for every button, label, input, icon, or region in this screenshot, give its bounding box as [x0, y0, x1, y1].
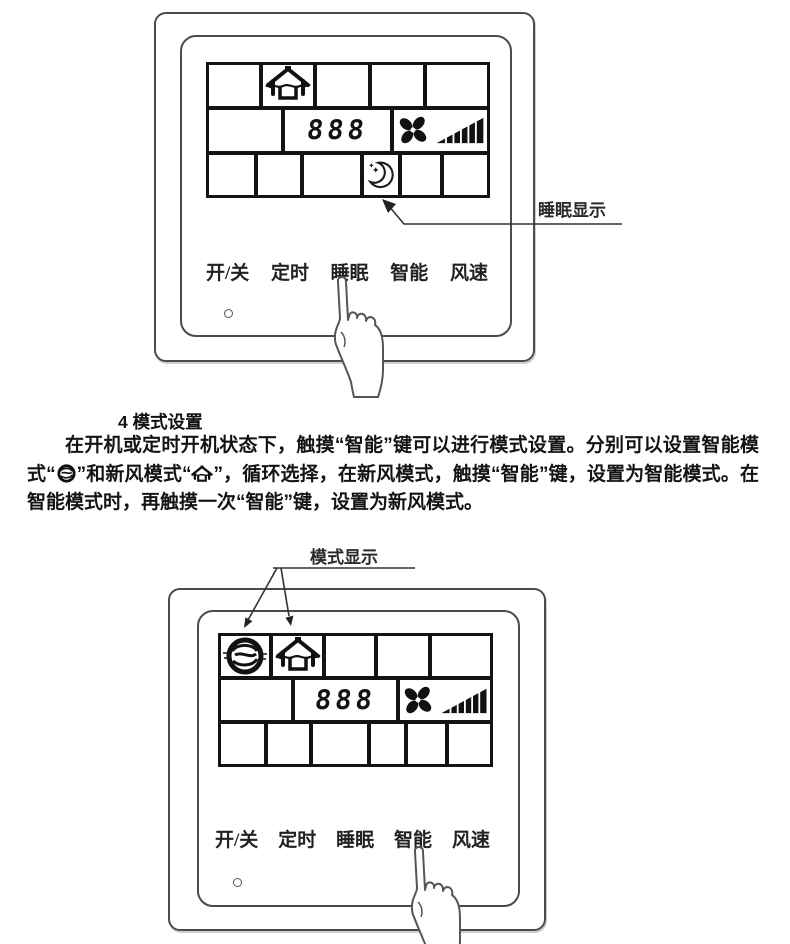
lcd-cell-empty: [258, 155, 305, 195]
lcd-digits: 888: [313, 687, 377, 714]
fresh-air-house-icon: [265, 65, 311, 105]
lcd-cell-empty: [372, 65, 428, 106]
lcd-digits: 888: [306, 117, 370, 144]
lcd-cell-empty: [402, 155, 444, 195]
lcd-cell-fan-speed: [394, 110, 487, 151]
manual-page: 888: [0, 0, 790, 944]
lcd-cell-empty: [326, 636, 378, 676]
lcd-cell-empty: [371, 724, 408, 764]
pointing-hand-icon: [409, 846, 465, 944]
lcd-cell-fan-speed: [400, 680, 490, 720]
power-led: [233, 878, 242, 887]
section-heading: 4 模式设置: [118, 409, 203, 434]
lcd-cell-sleep: [364, 155, 402, 195]
lcd-cell-digits: 888: [295, 680, 400, 720]
lcd-cell-empty: [304, 155, 363, 195]
paragraph-quote-open: “: [46, 464, 56, 485]
lcd-cell-empty: [313, 724, 371, 764]
key-sleep[interactable]: 睡眠: [336, 825, 374, 852]
lcd-cell-empty: [378, 636, 432, 676]
sleep-callout-leader: [380, 198, 626, 228]
sleep-moon-icon: [367, 159, 395, 191]
lcd-cell-empty: [317, 65, 371, 106]
key-timer[interactable]: 定时: [271, 258, 309, 285]
lcd-cell-fresh-air: [263, 65, 317, 106]
lcd-cell-empty: [427, 65, 487, 106]
key-timer[interactable]: 定时: [278, 825, 316, 852]
lcd-cell-empty: [221, 680, 295, 720]
lcd-cell-smart-mode: [221, 636, 273, 676]
lcd-cell-empty: [408, 724, 449, 764]
lcd-cell-digits: 888: [285, 110, 393, 151]
lcd-display: 888: [218, 633, 493, 767]
mode-callout-leader: [240, 560, 420, 634]
fan-icon: [400, 682, 436, 718]
lcd-cell-empty: [449, 724, 490, 764]
pointing-hand-icon: [332, 276, 388, 398]
key-fanspeed[interactable]: 风速: [450, 258, 488, 285]
paragraph-run-2: ”和新风模式“: [77, 464, 192, 485]
fan-icon: [395, 112, 431, 148]
section-paragraph: 在开机或定时开机状态下，触摸“智能”键可以进行模式设置。分别可以设置智能模式“ …: [27, 432, 759, 518]
lcd-cell-empty: [209, 110, 285, 151]
key-smart[interactable]: 智能: [390, 258, 428, 285]
lcd-cell-empty: [444, 155, 487, 195]
fan-speed-bars-icon: [434, 116, 486, 144]
lcd-cell-empty: [268, 724, 313, 764]
lcd-cell-empty: [209, 65, 263, 106]
smart-mode-inline-icon: [56, 463, 77, 484]
fresh-air-house-icon: [275, 636, 321, 676]
key-power[interactable]: 开/关: [206, 258, 249, 285]
lcd-display: 888: [206, 62, 490, 198]
lcd-cell-fresh-air: [273, 636, 325, 676]
power-led: [224, 309, 233, 318]
smart-mode-icon: [223, 636, 267, 676]
lcd-cell-empty: [432, 636, 490, 676]
key-power[interactable]: 开/关: [215, 825, 258, 852]
fresh-air-inline-icon: [191, 465, 213, 484]
lcd-cell-empty: [221, 724, 268, 764]
lcd-cell-empty: [209, 155, 258, 195]
fan-speed-bars-icon: [439, 687, 489, 714]
